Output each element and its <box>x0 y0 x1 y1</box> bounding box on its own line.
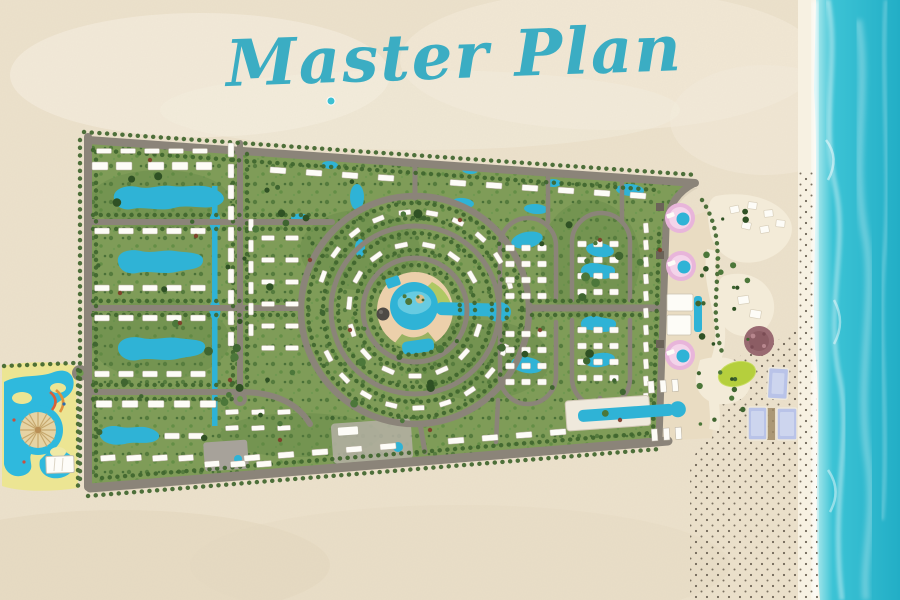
building <box>286 346 299 351</box>
building <box>249 303 254 315</box>
building <box>191 228 206 234</box>
building <box>244 454 260 461</box>
building <box>522 245 531 251</box>
shrub <box>699 333 706 340</box>
building <box>450 179 466 186</box>
tree <box>264 188 269 193</box>
tree <box>330 416 334 420</box>
building <box>119 228 134 234</box>
building <box>286 280 299 285</box>
building <box>522 379 531 385</box>
tree <box>362 327 366 331</box>
building <box>578 327 587 333</box>
tree <box>283 220 290 227</box>
building <box>506 363 515 369</box>
tree <box>591 278 600 287</box>
building <box>342 172 358 179</box>
shrub <box>745 278 751 284</box>
building <box>558 187 574 194</box>
building <box>594 359 603 365</box>
building <box>346 296 352 309</box>
tree <box>303 215 310 222</box>
building <box>538 347 547 353</box>
building <box>578 241 587 247</box>
building <box>100 454 115 461</box>
building <box>262 302 275 307</box>
building <box>262 258 275 263</box>
tree <box>550 385 555 390</box>
tree <box>490 398 494 402</box>
shrub <box>712 418 716 422</box>
tree <box>226 392 232 398</box>
building <box>249 240 254 252</box>
park-island <box>12 392 32 404</box>
building <box>172 162 188 170</box>
building <box>251 409 264 415</box>
tree <box>615 252 623 260</box>
building <box>262 236 275 241</box>
building <box>178 454 193 461</box>
tree <box>620 389 626 395</box>
tree <box>350 400 358 408</box>
building <box>262 346 275 351</box>
building <box>610 359 619 365</box>
tree <box>396 354 402 360</box>
building <box>225 409 238 415</box>
building <box>92 162 108 170</box>
tree <box>401 211 407 217</box>
building <box>594 289 603 295</box>
tree <box>455 339 459 343</box>
building <box>306 169 322 176</box>
dome-highlight <box>379 310 383 314</box>
tree <box>230 353 238 361</box>
tree <box>161 286 167 292</box>
tree <box>121 379 128 386</box>
tree <box>578 293 586 301</box>
shrub <box>732 307 736 311</box>
tree <box>236 384 244 392</box>
building <box>594 257 603 263</box>
tree <box>221 398 229 406</box>
pool-club <box>665 340 695 370</box>
building <box>506 331 515 337</box>
building <box>278 451 294 458</box>
tree <box>204 347 213 356</box>
building <box>506 347 515 353</box>
ocean-water <box>814 0 900 600</box>
tree <box>584 258 590 264</box>
building <box>538 331 547 337</box>
tree <box>436 345 444 353</box>
building <box>412 405 424 410</box>
building <box>119 371 134 377</box>
building <box>643 223 649 233</box>
building <box>312 449 328 456</box>
building <box>228 290 234 304</box>
building <box>522 293 531 299</box>
building <box>610 273 619 279</box>
building <box>506 261 515 267</box>
shrub <box>721 217 724 220</box>
building <box>145 149 160 154</box>
building <box>165 433 180 439</box>
tree <box>275 185 280 190</box>
tree <box>226 265 231 270</box>
building <box>506 277 515 283</box>
building <box>643 240 649 250</box>
building <box>506 293 515 299</box>
building <box>380 443 396 450</box>
page-title: Master Plan <box>223 11 684 102</box>
building <box>228 269 234 283</box>
building <box>482 434 498 441</box>
master-plan-map: Master Plan <box>0 0 900 600</box>
tree <box>414 209 423 218</box>
building <box>610 343 619 349</box>
tree <box>427 380 434 387</box>
building <box>270 167 286 174</box>
master-plan-page: Master Plan <box>0 0 900 600</box>
building <box>200 401 216 408</box>
tree <box>421 215 426 220</box>
building <box>228 227 234 241</box>
shrub <box>697 371 701 375</box>
building <box>126 454 141 461</box>
building <box>594 375 603 381</box>
tree <box>522 351 529 358</box>
tree <box>277 421 282 426</box>
shrub <box>716 256 720 260</box>
tree <box>498 344 506 352</box>
building <box>96 401 112 408</box>
building <box>338 426 359 435</box>
tree <box>252 226 259 233</box>
building <box>610 289 619 295</box>
shrub <box>700 274 704 278</box>
building <box>277 409 290 415</box>
tree <box>566 221 573 228</box>
building <box>643 325 649 335</box>
building <box>119 285 134 291</box>
pool-club <box>665 203 695 233</box>
building <box>522 277 531 283</box>
building <box>522 363 531 369</box>
building <box>262 324 275 329</box>
building <box>95 315 110 321</box>
building <box>578 375 587 381</box>
kiosk <box>656 203 664 211</box>
building <box>286 258 299 263</box>
building <box>143 285 158 291</box>
building <box>121 149 136 154</box>
building <box>167 315 182 321</box>
building <box>256 460 271 467</box>
tree <box>403 294 407 298</box>
building <box>97 149 112 154</box>
building <box>143 371 158 377</box>
shrub <box>712 342 716 346</box>
shrub <box>746 338 749 341</box>
building <box>167 371 182 377</box>
building <box>119 315 134 321</box>
building <box>578 343 587 349</box>
shrub <box>697 383 703 389</box>
tree <box>139 394 143 398</box>
building <box>193 149 208 154</box>
tree <box>93 342 98 347</box>
building <box>228 332 234 346</box>
building <box>95 371 110 377</box>
building <box>643 257 649 267</box>
building <box>643 359 649 369</box>
tree <box>585 349 594 358</box>
building <box>251 425 264 431</box>
building <box>522 331 531 337</box>
tree <box>201 435 207 441</box>
building <box>191 315 206 321</box>
building <box>643 274 649 284</box>
building <box>538 293 547 299</box>
building <box>506 245 515 251</box>
shrub <box>740 407 745 412</box>
building <box>378 174 394 181</box>
building <box>228 143 234 157</box>
kiosk <box>656 340 664 348</box>
building <box>152 454 167 461</box>
building <box>196 162 212 170</box>
tree <box>320 310 326 316</box>
building <box>448 437 464 444</box>
building <box>228 311 234 325</box>
building <box>191 371 206 377</box>
building <box>228 206 234 220</box>
building <box>204 460 219 467</box>
tree <box>457 248 461 252</box>
building <box>228 185 234 199</box>
tree <box>583 357 590 364</box>
building <box>346 446 362 453</box>
tree <box>593 241 597 245</box>
building <box>594 327 603 333</box>
tree <box>265 378 270 383</box>
building <box>228 248 234 262</box>
building <box>116 162 132 170</box>
tree <box>290 370 296 376</box>
tree <box>135 363 140 368</box>
tree <box>357 358 365 366</box>
shrub <box>729 396 734 401</box>
tree <box>602 410 609 417</box>
tree <box>96 263 100 267</box>
dome-pavilion <box>377 308 390 321</box>
tree <box>539 241 544 246</box>
tree <box>350 179 355 184</box>
building <box>550 429 566 436</box>
building <box>486 182 502 189</box>
tree <box>278 210 286 218</box>
building <box>594 190 610 197</box>
shrub <box>703 252 710 259</box>
building <box>143 228 158 234</box>
building <box>643 308 649 318</box>
tree <box>612 378 616 382</box>
building <box>506 379 515 385</box>
building <box>610 327 619 333</box>
shrub <box>730 377 734 381</box>
building <box>167 228 182 234</box>
building <box>143 315 158 321</box>
building <box>167 285 182 291</box>
building <box>538 277 547 283</box>
building <box>630 192 646 199</box>
tree <box>113 198 122 207</box>
tree <box>154 172 162 180</box>
tree <box>233 344 241 352</box>
building <box>249 324 254 336</box>
building <box>610 241 619 247</box>
shrub <box>703 266 709 272</box>
building <box>191 285 206 291</box>
tree <box>128 176 135 183</box>
building <box>286 236 299 241</box>
tree <box>581 272 590 281</box>
building <box>148 162 164 170</box>
building <box>174 401 190 408</box>
building <box>225 425 238 431</box>
building <box>95 228 110 234</box>
tree <box>96 429 102 435</box>
building <box>228 164 234 178</box>
building <box>538 261 547 267</box>
shrub <box>732 286 735 289</box>
tree <box>190 220 194 224</box>
shrub <box>743 217 749 223</box>
tree <box>400 418 405 423</box>
shrub <box>732 387 737 392</box>
building <box>516 431 532 438</box>
building <box>522 184 538 191</box>
building <box>643 342 649 352</box>
tree <box>237 319 242 324</box>
shrub <box>742 209 748 215</box>
shrub <box>699 422 703 426</box>
pool-club <box>666 251 696 281</box>
building <box>95 285 110 291</box>
feature-tree <box>744 326 774 356</box>
tree <box>405 298 412 305</box>
shrub <box>695 301 701 307</box>
shrub <box>730 262 736 268</box>
building <box>286 324 299 329</box>
shrub <box>718 370 722 374</box>
building <box>409 374 422 379</box>
building <box>538 363 547 369</box>
tree <box>637 259 644 266</box>
building <box>643 291 649 301</box>
building <box>594 343 603 349</box>
thatch-umbrella <box>20 412 56 448</box>
building <box>249 282 254 294</box>
building <box>169 149 184 154</box>
building <box>230 460 245 467</box>
building <box>522 261 531 267</box>
building <box>249 261 254 273</box>
shrub <box>735 286 739 290</box>
building <box>148 401 164 408</box>
tree <box>310 241 314 245</box>
building <box>538 379 547 385</box>
tree <box>242 257 246 261</box>
building <box>286 302 299 307</box>
tree <box>266 283 273 290</box>
building <box>594 273 603 279</box>
building <box>122 401 138 408</box>
shrub <box>701 301 705 305</box>
tree <box>258 413 263 418</box>
shrub <box>718 269 724 275</box>
entrance-pavilion <box>46 456 75 474</box>
